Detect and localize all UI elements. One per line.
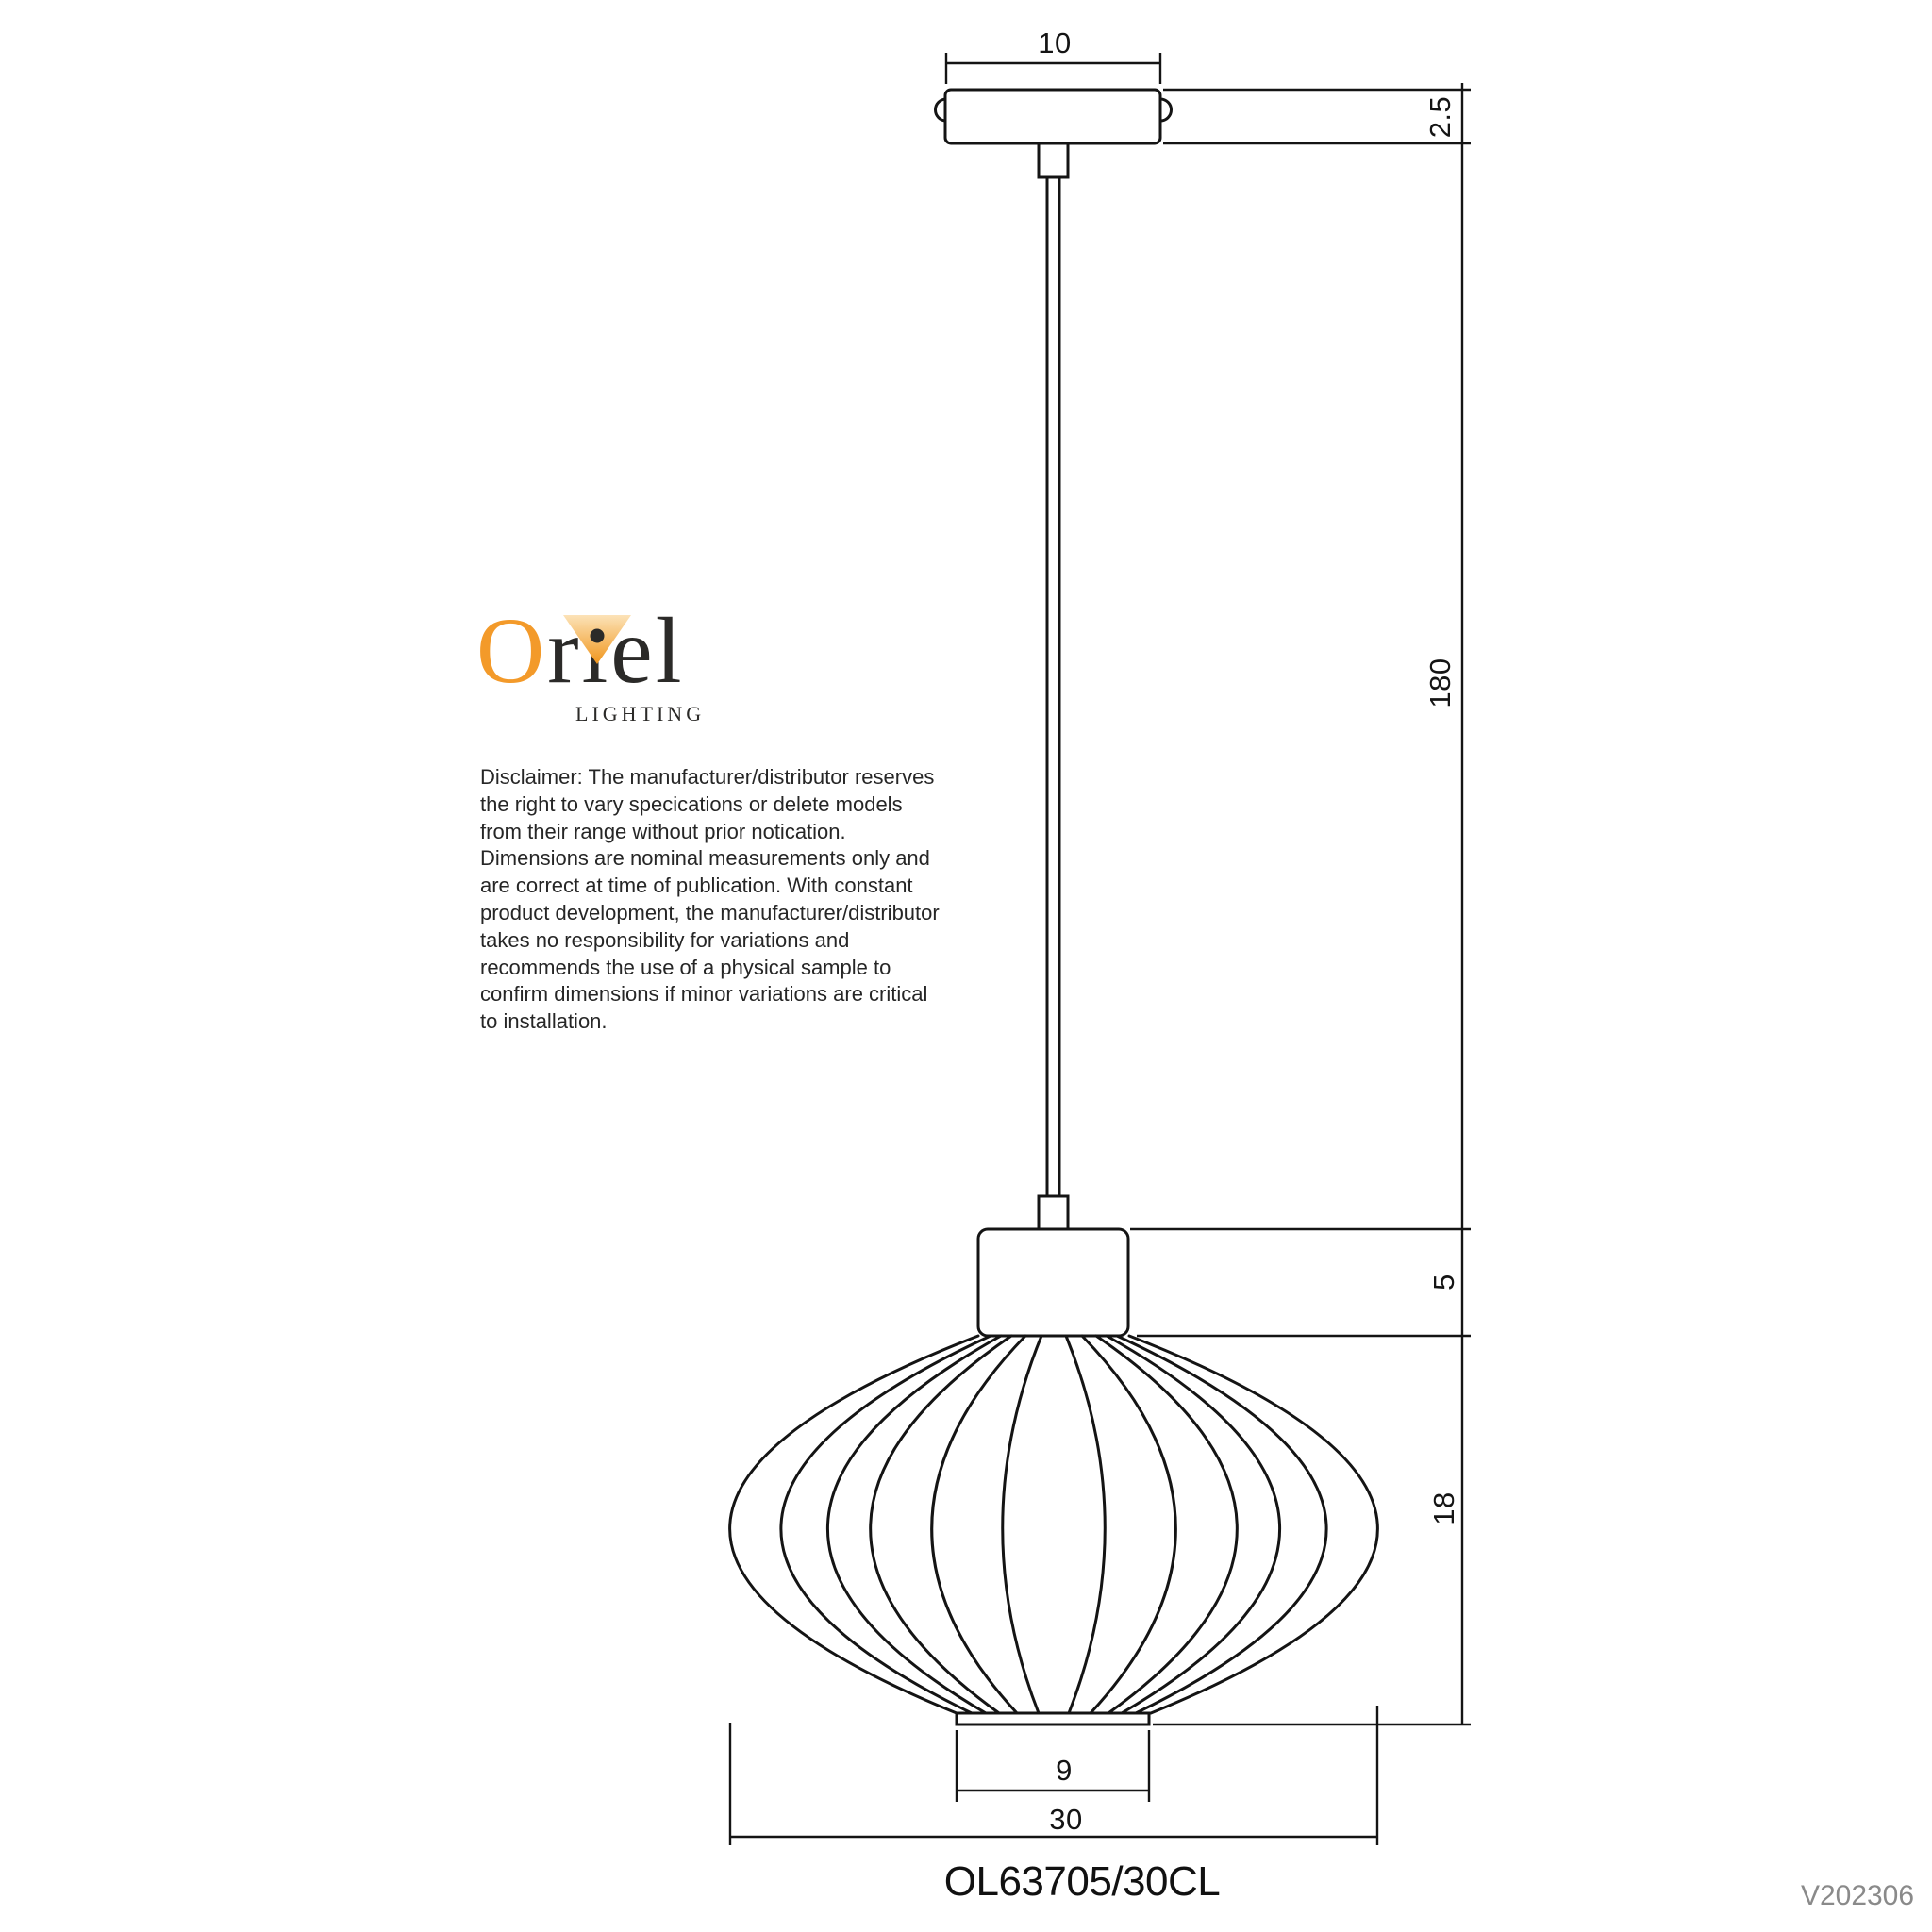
disclaimer-text: Disclaimer: The manufacturer/distributor…: [480, 764, 990, 1036]
canopy-right-knob: [1160, 99, 1172, 121]
product-code: OL63705/30CL: [944, 1858, 1220, 1906]
canopy-width-label: 10: [1038, 26, 1071, 60]
logo-subtitle: LIGHTING: [575, 702, 705, 726]
canopy-height-label: 2.5: [1424, 96, 1457, 139]
shade-bottom-ring: [957, 1713, 1149, 1724]
spec-sheet: 10 2.5 180 5 18 9 30 OL63705/30CL V20230…: [0, 0, 1932, 1932]
shade-ribs-right: [1066, 1336, 1377, 1713]
lamp-gallery: [978, 1229, 1128, 1336]
oriel-logo: Oriel LIGHTING: [476, 604, 741, 745]
suspension-length-label: 180: [1424, 658, 1457, 708]
version-number: V202306: [1801, 1880, 1914, 1912]
gallery-height-label: 5: [1427, 1274, 1461, 1291]
ceiling-canopy: [945, 90, 1160, 143]
shade-diameter-label: 30: [1049, 1803, 1082, 1837]
dimension-extension-lines: [1130, 90, 1471, 1724]
shade-ribs-left: [730, 1336, 1041, 1713]
shade-height-label: 18: [1427, 1491, 1461, 1524]
top-cord-connector: [1039, 143, 1068, 177]
logo-letter-o: O: [476, 598, 547, 703]
bottom-cord-connector: [1039, 1196, 1068, 1229]
shade-bottom-label: 9: [1056, 1754, 1073, 1788]
lampshade-cone-icon: [559, 613, 635, 668]
dimension-shade-bottom: [957, 1730, 1149, 1802]
